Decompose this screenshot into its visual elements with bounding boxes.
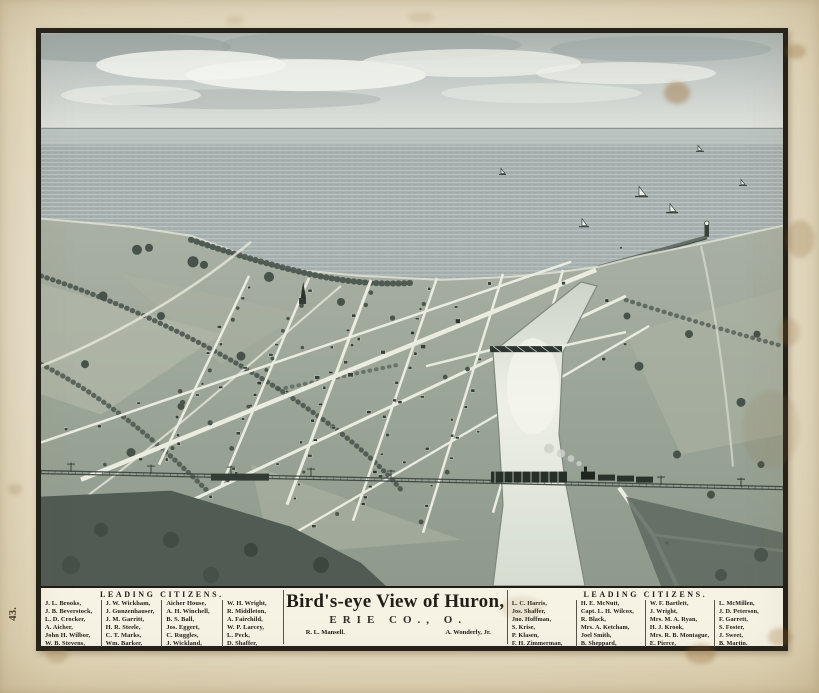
- aged-paper-sheet: 43.: [0, 0, 819, 693]
- citizen-name: D. Shaffer,: [227, 640, 281, 648]
- citizen-name: Mrs. A. Ketcham,: [581, 624, 643, 632]
- citizen-name: H. E. McNutt,: [581, 600, 643, 608]
- citizen-name: J. Wright,: [650, 608, 712, 616]
- print-frame: LEADING CITIZENS. J. L. Brooks, J. B. Be…: [36, 28, 788, 651]
- citizen-name: J. Gunzenhauser,: [106, 608, 160, 616]
- citizen-name: E. Pierce,: [650, 640, 712, 648]
- citizen-name: Jno. Hoffman,: [512, 616, 574, 624]
- citizen-name: Joel Smith,: [581, 632, 643, 640]
- citizen-name: Mrs. M. A. Ryan,: [650, 616, 712, 624]
- birdseye-artwork: [41, 33, 783, 588]
- citizen-name: J. M. Garritt,: [106, 616, 160, 624]
- citizens-column: J. L. Brooks, J. B. Beverstock, L. D. Cr…: [41, 600, 101, 647]
- citizens-column: W. H. Wright, R. Middleton, A. Fairchild…: [222, 600, 283, 647]
- railroad-bridge: [491, 472, 567, 483]
- lighthouse: [705, 221, 710, 237]
- birdseye-lithograph: [41, 33, 783, 586]
- citizen-name: L. Peck,: [227, 632, 281, 640]
- citizen-name: B. S. Ball,: [166, 616, 220, 624]
- citizen-name: C. Ruggles,: [166, 632, 220, 640]
- citizen-name: W. B. Stevens,: [45, 640, 99, 648]
- citizen-name: A. Aicher,: [45, 624, 99, 632]
- foxing-stain: [408, 12, 434, 23]
- citizen-name: Jos. Shaffer,: [512, 608, 574, 616]
- leading-citizens-left: LEADING CITIZENS. J. L. Brooks, J. B. Be…: [41, 588, 283, 646]
- citizen-name: B. Martin.: [719, 640, 781, 648]
- citizen-name: W. H. Wright,: [227, 600, 281, 608]
- citizens-columns-left: J. L. Brooks, J. B. Beverstock, L. D. Cr…: [41, 599, 283, 649]
- credits: R. L. Mansell. A. Wonderly, Jr.: [284, 627, 507, 636]
- citizens-column: H. E. McNutt, Capt. L. H. Wilcox, R. Bla…: [576, 600, 645, 647]
- citizen-name: C. T. Marks,: [106, 632, 160, 640]
- foxing-stain: [786, 44, 806, 59]
- citizen-name: W. F. Bartlett,: [650, 600, 712, 608]
- citizen-name: L. D. Crocker,: [45, 616, 99, 624]
- caption-banner: LEADING CITIZENS. J. L. Brooks, J. B. Be…: [41, 588, 783, 646]
- citizens-column: L. McMillen, J. D. Peterson, F. Garrett,…: [714, 600, 783, 647]
- foxing-stain: [8, 484, 22, 495]
- citizen-name: B. Sheppard,: [581, 640, 643, 648]
- title-block: Bird's-eye View of Huron, ERIE CO., O. R…: [284, 588, 507, 646]
- map-title: Bird's-eye View of Huron,: [286, 591, 504, 613]
- citizens-column: Aicher House, A. H. Winchell, B. S. Ball…: [161, 600, 222, 647]
- citizens-columns-right: L. C. Harris, Jos. Shaffer, Jno. Hoffman…: [508, 599, 783, 649]
- citizens-column: J. W. Wickham, J. Gunzenhauser, J. M. Ga…: [101, 600, 162, 647]
- margin-page-number: 43.: [7, 607, 19, 621]
- citizen-name: H. J. Krook,: [650, 624, 712, 632]
- citizen-name: L. C. Harris,: [512, 600, 574, 608]
- citizens-heading-left: LEADING CITIZENS.: [41, 590, 283, 599]
- citizen-name: S. Krise,: [512, 624, 574, 632]
- citizen-name: A. H. Winchell,: [166, 608, 220, 616]
- citizen-name: J. Wickland,: [166, 640, 220, 648]
- citizen-name: J. B. Beverstock,: [45, 608, 99, 616]
- citizen-name: J. D. Peterson,: [719, 608, 781, 616]
- citizens-column: W. F. Bartlett, J. Wright, Mrs. M. A. Ry…: [645, 600, 714, 647]
- citizens-column: L. C. Harris, Jos. Shaffer, Jno. Hoffman…: [508, 600, 576, 647]
- citizen-name: P. Klasen,: [512, 632, 574, 640]
- credit-right: A. Wonderly, Jr.: [445, 629, 490, 636]
- citizen-name: Aicher House,: [166, 600, 220, 608]
- foxing-stain: [786, 220, 814, 258]
- citizen-name: J. W. Wickham,: [106, 600, 160, 608]
- foxing-stain: [226, 16, 244, 25]
- citizen-name: R. Middleton,: [227, 608, 281, 616]
- map-subtitle: ERIE CO., O.: [323, 614, 467, 627]
- citizen-name: W. P. Larcey,: [227, 624, 281, 632]
- railroad-station: [211, 474, 269, 481]
- citizen-name: A. Fairchild,: [227, 616, 281, 624]
- citizen-name: L. McMillen,: [719, 600, 781, 608]
- citizen-name: S. Foster,: [719, 624, 781, 632]
- citizen-name: Capt. L. H. Wilcox,: [581, 608, 643, 616]
- citizen-name: F. H. Zimmerman,: [512, 640, 574, 648]
- sky: [41, 33, 783, 133]
- citizen-name: H. R. Steele,: [106, 624, 160, 632]
- citizen-name: Wm. Barker,: [106, 640, 160, 648]
- leading-citizens-right: LEADING CITIZENS. L. C. Harris, Jos. Sha…: [508, 588, 783, 646]
- citizen-name: R. Black,: [581, 616, 643, 624]
- citizen-name: F. Garrett,: [719, 616, 781, 624]
- citizen-name: John H. Wilbor,: [45, 632, 99, 640]
- credit-left: R. L. Mansell.: [306, 629, 345, 636]
- citizen-name: Mrs. R. B. Montague,: [650, 632, 712, 640]
- citizens-heading-right: LEADING CITIZENS.: [508, 590, 783, 599]
- citizen-name: J. Sweet,: [719, 632, 781, 640]
- citizen-name: Jos. Eggert,: [166, 624, 220, 632]
- citizen-name: J. L. Brooks,: [45, 600, 99, 608]
